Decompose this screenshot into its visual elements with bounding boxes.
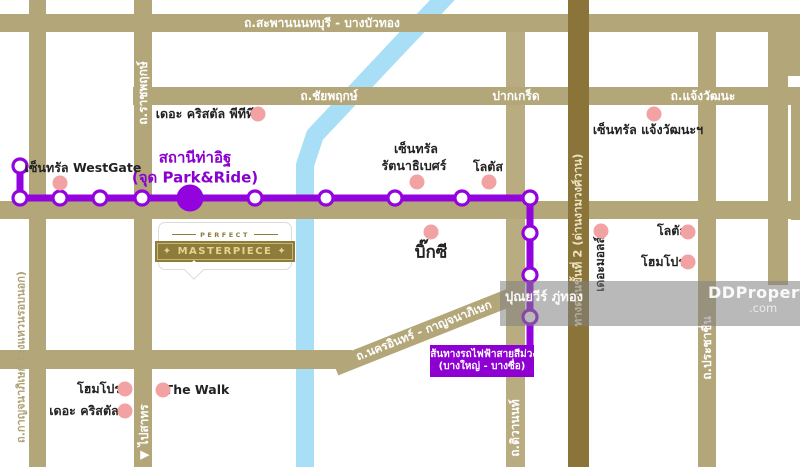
poi-dot-crystal-ptt <box>251 107 266 122</box>
metro-route-line2: (บางใหญ่ - บางซื่อ) <box>439 361 526 374</box>
poi-label-homepro-prachachuen: โฮมโปร <box>641 256 685 269</box>
road-label-tiwanon: ถ.ติวานนท์ <box>509 399 521 456</box>
poi-label-central-westgate: เซ็นทรัล WestGate <box>25 162 142 175</box>
poi-dot-the-crystal <box>118 404 133 419</box>
poi-dot-central-rattanathibet <box>410 175 425 190</box>
poi-dot-central-westgate <box>53 176 68 191</box>
station-marker <box>388 191 402 205</box>
station-marker <box>319 191 333 205</box>
poi-label-the-walk: The Walk <box>165 384 230 397</box>
station-marker <box>53 191 67 205</box>
watermark-agent-name: ปุณยวีร์ ภู่ทอง <box>505 286 583 307</box>
road-right-2 <box>791 87 800 220</box>
poi-dot-the-walk <box>156 383 171 398</box>
logo-eyebrow-text: PERFECT <box>200 231 250 239</box>
station-tha-it-label: สถานีท่าอิฐ <box>159 151 232 166</box>
poi-label-big-c: บิ๊กซี <box>415 245 448 262</box>
road-label-saphan-nonthaburi: ถ.สะพานนนทบุรี - บางบัวทอง <box>244 17 400 29</box>
logo-eyebrow-line <box>254 234 278 235</box>
poi-dot-lotus-chaengwattana <box>681 225 696 240</box>
station-marker <box>455 191 469 205</box>
station-marker <box>523 268 537 282</box>
logo-eyebrow-row: PERFECT <box>172 231 278 239</box>
logo-name-text: ✦ MASTERPIECE ✦ <box>157 243 294 260</box>
station-marker <box>248 191 262 205</box>
watermark-brand-domain: .com <box>749 301 777 315</box>
metro-route-line1: เส้นทางรถไฟฟ้าสายสีม่วง <box>427 349 537 362</box>
station-tha-it-marker <box>177 185 204 212</box>
road-label-to-sathorn: ▼ ไปสาทร <box>138 404 150 459</box>
road-label-chaiyaphruek: ถ.ชัยพฤกษ์ <box>300 90 357 102</box>
road-southwest <box>0 350 352 369</box>
poi-dot-big-c <box>424 225 439 240</box>
road-label-ratchaphruek: ถ.ราชพฤกษ์ <box>137 61 149 125</box>
poi-label-homepro-west: โฮมโปร <box>77 383 121 396</box>
poi-dot-lotus-rattanathibet <box>482 175 497 190</box>
map-canvas[interactable]: ถ.สะพานนนทบุรี - บางบัวทอง ถ.ชัยพฤกษ์ ปา… <box>0 0 800 467</box>
logo-nameplate: ✦ MASTERPIECE ✦ <box>155 241 296 262</box>
station-marker <box>93 191 107 205</box>
road-kanchanaphisek <box>29 0 46 467</box>
poi-label-central-chaengwattana: เซ็นทรัล แจ้งวัฒนะฯ <box>593 124 703 137</box>
station-marker <box>135 191 149 205</box>
station-marker <box>523 191 537 205</box>
poi-label-central-rattanathibet-1: เซ็นทรัล <box>394 143 438 156</box>
station-marker <box>523 226 537 240</box>
watermark-brand-logo: DDProperty <box>708 283 800 302</box>
poi-label-the-crystal: เดอะ คริสตัล <box>49 405 118 418</box>
project-logo-callout: PERFECT ✦ MASTERPIECE ✦ <box>158 222 292 270</box>
poi-label-central-rattanathibet-2: รัตนาธิเบศร์ <box>382 160 447 173</box>
station-marker <box>13 191 27 205</box>
poi-dot-homepro-prachachuen <box>681 255 696 270</box>
poi-label-crystal-ptt: เดอะ คริสตัล พีทีที <box>156 108 255 121</box>
poi-label-lotus-rattanathibet: โลตัส <box>473 161 503 174</box>
road-label-kanchanaphisek: ถ.กาญจนาภิเษก (วงแหวนรอบนอก) <box>16 271 27 443</box>
poi-dot-homepro-west <box>118 382 133 397</box>
road-label-pak-kret: ปากเกร็ด <box>492 90 539 102</box>
station-tha-it-note: (จุด Park&Ride) <box>132 171 258 186</box>
logo-eyebrow-line <box>172 234 196 235</box>
metro-route-label-box: เส้นทางรถไฟฟ้าสายสีม่วง (บางใหญ่ - บางซื… <box>430 345 534 377</box>
poi-dot-the-mall <box>594 224 609 239</box>
road-label-chaengwattana: ถ.แจ้งวัฒนะ <box>671 90 736 102</box>
road-prachachuen <box>698 14 716 467</box>
poi-dot-central-chaengwattana <box>647 107 662 122</box>
